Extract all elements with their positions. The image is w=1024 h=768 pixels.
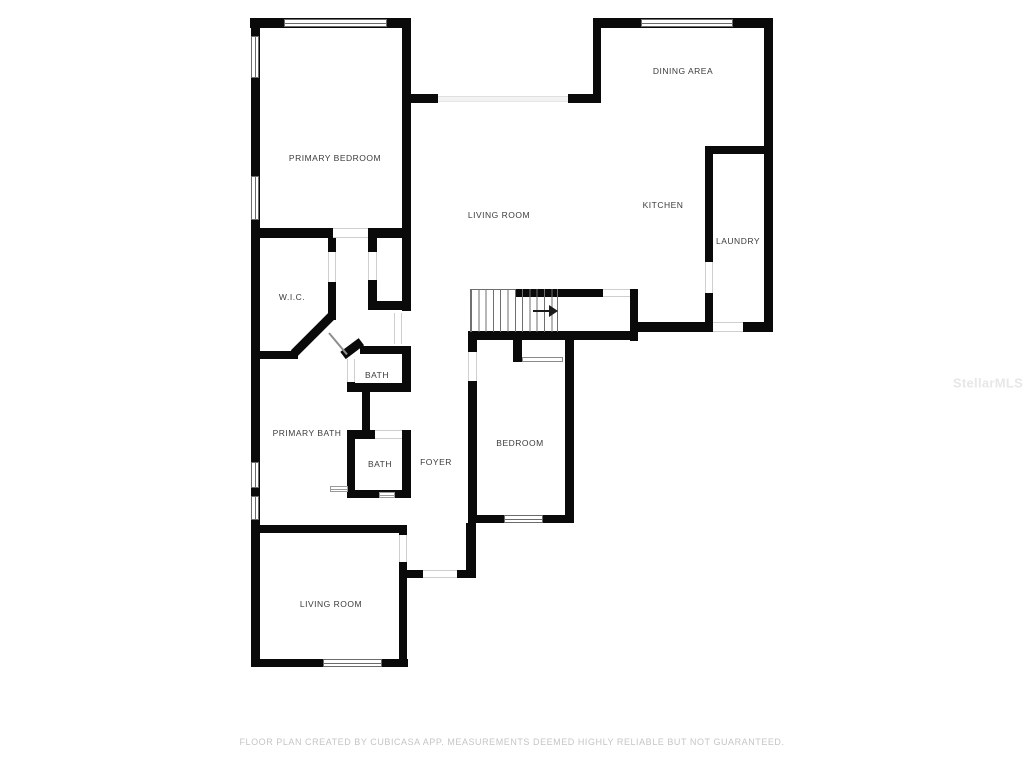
bath-fixture — [379, 492, 395, 498]
wall — [399, 562, 407, 667]
wall — [362, 392, 370, 432]
door-opening — [603, 289, 630, 297]
window — [504, 515, 543, 523]
wall — [593, 18, 601, 103]
window — [251, 176, 259, 220]
wall — [705, 146, 713, 262]
wall — [468, 340, 477, 352]
window — [284, 19, 387, 27]
door-opening — [375, 430, 402, 439]
wall — [368, 233, 377, 252]
bath-fixture — [330, 486, 348, 492]
wall — [764, 18, 773, 332]
wall — [743, 322, 773, 332]
stair-direction-arrow-head — [549, 305, 558, 317]
room-label-bath-lower: BATH — [368, 459, 392, 469]
door-opening — [368, 252, 377, 280]
room-label-laundry: LAUNDRY — [716, 236, 760, 246]
room-label-wic: W.I.C. — [279, 292, 305, 302]
room-label-living-room-lower: LIVING ROOM — [300, 599, 362, 609]
wall — [513, 340, 522, 362]
door-opening — [394, 313, 402, 344]
stair-direction-arrow — [533, 310, 550, 312]
cased-opening — [438, 96, 568, 102]
wall — [402, 430, 411, 498]
room-label-primary-bath: PRIMARY BATH — [273, 428, 342, 438]
mls-watermark: StellarMLS — [953, 376, 1023, 391]
door-opening — [713, 322, 743, 332]
wall — [638, 322, 713, 332]
wall — [251, 228, 333, 238]
wall — [468, 331, 638, 340]
window — [323, 659, 382, 667]
wall — [705, 146, 773, 154]
wall — [251, 525, 407, 533]
window — [251, 36, 259, 78]
wall — [402, 18, 411, 311]
door-opening — [468, 352, 477, 381]
window — [251, 462, 259, 488]
floor-plan: PRIMARY BEDROOM LIVING ROOM DINING AREA … — [0, 0, 1024, 768]
door-opening — [328, 252, 336, 282]
room-label-primary-bedroom: PRIMARY BEDROOM — [289, 153, 381, 163]
room-label-living-room: LIVING ROOM — [468, 210, 530, 220]
disclaimer-text: FLOOR PLAN CREATED BY CUBICASA APP. MEAS… — [239, 737, 784, 747]
door-opening — [705, 262, 713, 293]
room-label-bedroom: BEDROOM — [496, 438, 543, 448]
wall — [368, 301, 411, 310]
door-opening — [333, 228, 368, 238]
door-opening — [399, 535, 407, 562]
wall — [457, 570, 476, 578]
wall — [251, 351, 298, 359]
wall — [347, 383, 411, 392]
room-label-bath-upper: BATH — [365, 370, 389, 380]
door-leaf — [328, 332, 348, 355]
window — [251, 496, 259, 520]
wall — [565, 340, 574, 523]
door-opening — [347, 359, 355, 382]
closet-sliding-door — [522, 357, 563, 362]
room-label-foyer: FOYER — [420, 457, 452, 467]
room-label-kitchen: KITCHEN — [643, 200, 684, 210]
staircase-edge — [470, 289, 516, 290]
wall — [251, 18, 260, 667]
window — [641, 19, 733, 27]
wall — [705, 293, 713, 324]
wall — [347, 430, 355, 498]
wall — [402, 94, 438, 103]
door-opening-front-entry — [423, 570, 457, 578]
room-label-dining-area: DINING AREA — [653, 66, 713, 76]
wall — [468, 381, 477, 523]
